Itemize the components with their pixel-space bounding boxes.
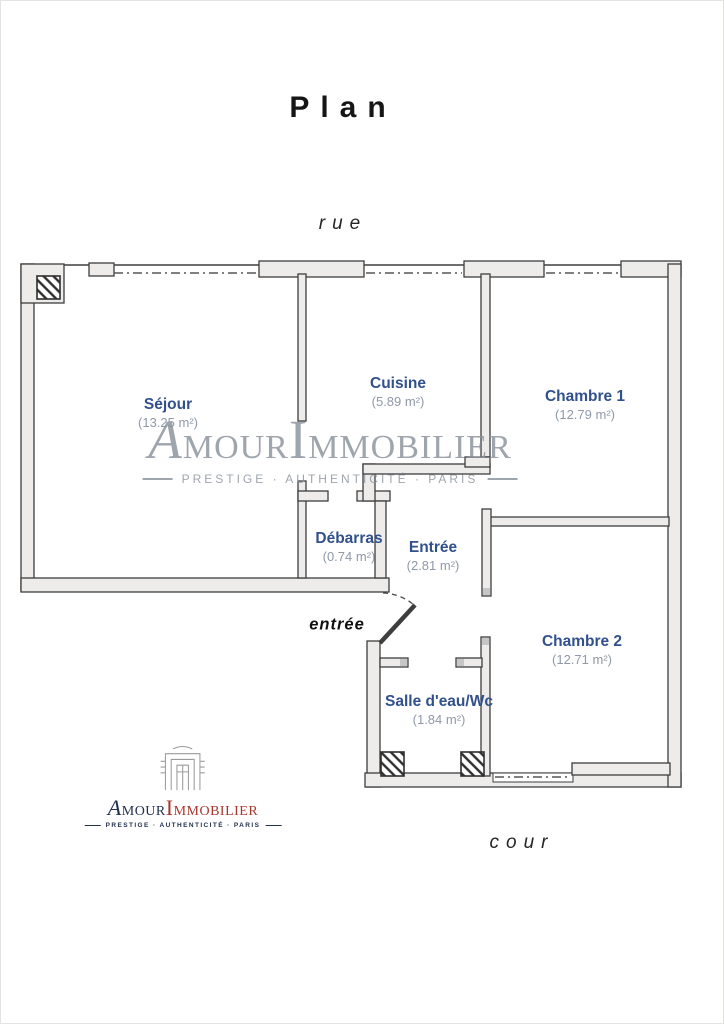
door-jamb-shade [483, 588, 490, 595]
entrance-door [380, 593, 415, 643]
logo-brand-part2: Immobilier [166, 797, 258, 819]
room-label-chambre-1: Chambre 1 (12.79 m²) [545, 387, 625, 424]
room-label-cuisine: Cuisine (5.89 m²) [370, 374, 426, 411]
room-name: Chambre 2 [542, 632, 622, 652]
room-label-salle-deau-wc: Salle d'eau/Wc (1.84 m²) [385, 692, 493, 729]
room-area: (2.81 m²) [407, 558, 460, 575]
room-name: Entrée [407, 538, 460, 558]
column-hatched-icon [37, 276, 60, 299]
door-leaf-icon [380, 605, 415, 643]
dash-rule-icon [265, 825, 281, 826]
floor-plan-page: Plan rue cour entrée [0, 0, 724, 1024]
room-label-entree: Entrée (2.81 m²) [407, 538, 460, 575]
column-hatched-icon [461, 752, 484, 776]
room-name: Débarras [315, 529, 382, 549]
room-label-sejour: Séjour (13.25 m²) [138, 395, 198, 432]
column-hatched-icon [381, 752, 404, 776]
dash-rule-icon [85, 825, 101, 826]
room-name: Séjour [138, 395, 198, 415]
room-label-debarras: Débarras (0.74 m²) [315, 529, 382, 566]
floor-plan-drawing [1, 1, 724, 1024]
door-jamb-shade [482, 638, 489, 645]
logo-building-icon [154, 746, 212, 792]
logo-brand-part1: Amour [108, 797, 166, 819]
door-jamb-shade [457, 659, 464, 666]
room-area: (12.71 m²) [542, 652, 622, 669]
door-swing-arc-icon [383, 593, 414, 605]
room-area: (13.25 m²) [138, 415, 198, 432]
logo-tagline: PRESTIGE · AUTHENTICITÉ · PARIS [106, 822, 261, 829]
agency-logo: AmourImmobilier PRESTIGE · AUTHENTICITÉ … [85, 746, 282, 829]
room-name: Chambre 1 [545, 387, 625, 407]
room-area: (0.74 m²) [315, 549, 382, 566]
room-area: (1.84 m²) [385, 712, 493, 729]
room-area: (5.89 m²) [370, 394, 426, 411]
logo-brand: AmourImmobilier [85, 797, 282, 819]
room-name: Cuisine [370, 374, 426, 394]
logo-tagline-row: PRESTIGE · AUTHENTICITÉ · PARIS [85, 822, 282, 829]
room-name: Salle d'eau/Wc [385, 692, 493, 712]
door-jamb-shade [400, 659, 407, 666]
room-area: (12.79 m²) [545, 407, 625, 424]
room-label-chambre-2: Chambre 2 (12.71 m²) [542, 632, 622, 669]
